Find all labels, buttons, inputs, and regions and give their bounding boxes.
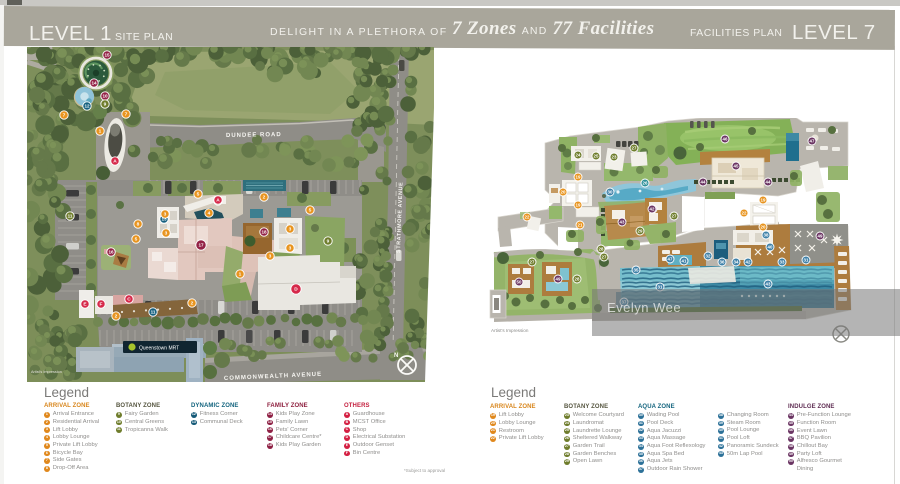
svg-text:N: N xyxy=(394,353,398,359)
svg-text:DUNDEE ROAD: DUNDEE ROAD xyxy=(226,132,282,139)
svg-text:11: 11 xyxy=(151,310,156,315)
svg-text:47: 47 xyxy=(668,257,673,262)
svg-text:22: 22 xyxy=(525,215,530,220)
svg-text:18: 18 xyxy=(261,230,267,235)
svg-text:42: 42 xyxy=(650,207,655,212)
svg-text:Queenstown MRT: Queenstown MRT xyxy=(139,346,179,352)
svg-text:19: 19 xyxy=(576,175,581,180)
svg-text:7: 7 xyxy=(63,113,66,119)
svg-text:43: 43 xyxy=(620,220,625,225)
svg-text:5: 5 xyxy=(309,208,312,214)
svg-text:1: 1 xyxy=(99,129,102,135)
svg-text:44: 44 xyxy=(701,180,706,185)
svg-text:3: 3 xyxy=(165,231,168,237)
svg-text:Artist's Impression: Artist's Impression xyxy=(31,370,62,374)
svg-text:D: D xyxy=(294,287,298,293)
svg-text:19: 19 xyxy=(576,203,581,208)
svg-text:3: 3 xyxy=(269,254,272,260)
svg-text:4: 4 xyxy=(208,211,211,217)
svg-text:3: 3 xyxy=(289,227,292,233)
svg-text:44: 44 xyxy=(766,180,771,185)
svg-text:32: 32 xyxy=(706,254,711,259)
svg-text:5: 5 xyxy=(197,192,200,198)
svg-text:46: 46 xyxy=(723,137,728,142)
svg-text:45: 45 xyxy=(734,164,739,169)
svg-text:3: 3 xyxy=(164,212,167,218)
svg-text:34: 34 xyxy=(734,260,739,265)
svg-text:47: 47 xyxy=(810,139,815,144)
svg-text:43: 43 xyxy=(766,282,771,287)
svg-text:7: 7 xyxy=(125,112,128,118)
svg-text:A: A xyxy=(113,159,117,165)
svg-text:25: 25 xyxy=(594,154,599,159)
svg-text:41: 41 xyxy=(682,259,687,264)
svg-text:35: 35 xyxy=(634,268,639,273)
svg-text:17: 17 xyxy=(198,243,204,248)
svg-text:23: 23 xyxy=(612,155,617,160)
svg-text:A: A xyxy=(216,198,220,204)
svg-text:40: 40 xyxy=(768,245,773,250)
svg-text:24: 24 xyxy=(576,153,581,158)
svg-text:27: 27 xyxy=(632,146,637,151)
svg-text:14: 14 xyxy=(91,81,97,86)
svg-text:38: 38 xyxy=(764,233,769,238)
svg-text:19: 19 xyxy=(761,198,766,203)
svg-text:16: 16 xyxy=(108,250,114,255)
svg-text:27: 27 xyxy=(530,260,535,265)
svg-text:26: 26 xyxy=(643,181,648,186)
svg-text:9: 9 xyxy=(327,239,330,245)
svg-text:28: 28 xyxy=(599,247,604,252)
svg-text:10: 10 xyxy=(102,94,108,99)
svg-text:49: 49 xyxy=(556,277,561,282)
svg-text:49: 49 xyxy=(818,234,823,239)
svg-text:42: 42 xyxy=(746,260,751,265)
svg-text:22: 22 xyxy=(742,211,747,216)
svg-text:12: 12 xyxy=(84,104,90,109)
svg-text:36: 36 xyxy=(720,260,725,265)
svg-text:20: 20 xyxy=(561,190,566,195)
svg-text:15: 15 xyxy=(104,53,110,58)
svg-text:F: F xyxy=(100,302,103,308)
svg-text:20: 20 xyxy=(761,225,766,230)
svg-text:27: 27 xyxy=(672,214,677,219)
svg-text:28: 28 xyxy=(575,277,580,282)
svg-text:1: 1 xyxy=(239,272,242,278)
svg-text:9: 9 xyxy=(104,102,107,108)
svg-text:29: 29 xyxy=(638,229,643,234)
svg-text:5: 5 xyxy=(135,237,138,243)
svg-text:33: 33 xyxy=(780,260,785,265)
svg-text:50: 50 xyxy=(517,280,522,285)
svg-text:30: 30 xyxy=(608,190,613,195)
svg-text:8: 8 xyxy=(137,222,140,228)
svg-text:2: 2 xyxy=(191,301,194,307)
svg-text:3: 3 xyxy=(289,246,292,252)
svg-text:31: 31 xyxy=(804,258,809,263)
svg-text:C: C xyxy=(127,297,131,303)
svg-text:21: 21 xyxy=(578,223,583,228)
svg-text:2: 2 xyxy=(115,314,118,320)
svg-text:27: 27 xyxy=(602,255,607,260)
svg-text:11: 11 xyxy=(68,214,73,219)
svg-text:2: 2 xyxy=(263,195,266,201)
